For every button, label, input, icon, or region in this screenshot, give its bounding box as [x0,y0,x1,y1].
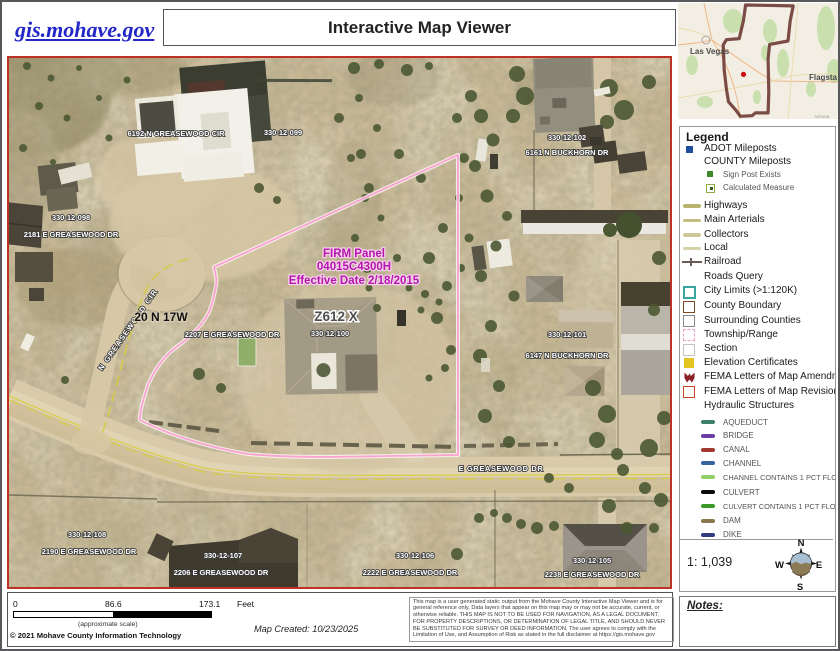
svg-text:330-12-100: 330-12-100 [311,329,349,338]
svg-text:6192 N GREASEWOOD CIR: 6192 N GREASEWOOD CIR [127,129,225,138]
svg-text:20 N 17W: 20 N 17W [134,310,188,324]
svg-text:330-12-105: 330-12-105 [573,556,611,565]
svg-text:04015C4300H: 04015C4300H [317,261,391,273]
svg-text:330-12-098: 330-12-098 [52,213,90,222]
svg-text:330-12-108: 330-12-108 [68,530,106,539]
svg-text:Flagsta: Flagsta [809,73,838,82]
svg-text:S: S [797,582,803,593]
svg-text:Las Vegas: Las Vegas [690,47,730,56]
svg-text:2206 E GREASEWOOD DR: 2206 E GREASEWOOD DR [174,568,269,577]
svg-text:N: N [798,538,805,549]
svg-text:2190 E GREASEWOOD DR: 2190 E GREASEWOOD DR [42,547,137,556]
svg-text:6161 N BUCKHORN DR: 6161 N BUCKHORN DR [526,148,610,157]
svg-text:330-12-106: 330-12-106 [396,551,434,560]
svg-text:2238 E GREASEWOOD DR: 2238 E GREASEWOOD DR [545,570,640,579]
svg-text:2222 E GREASEWOOD DR: 2222 E GREASEWOOD DR [363,568,458,577]
svg-text:330-12-107: 330-12-107 [204,551,242,560]
svg-text:2207 E GREASEWOOD DR: 2207 E GREASEWOOD DR [185,330,280,339]
svg-text:Z612 X: Z612 X [314,309,358,324]
svg-text:2181 E GREASEWOOD DR: 2181 E GREASEWOOD DR [24,230,119,239]
svg-text:6147 N BUCKHORN DR: 6147 N BUCKHORN DR [526,351,610,360]
svg-text:FIRM Panel: FIRM Panel [323,248,385,260]
svg-text:Effective Date 2/18/2015: Effective Date 2/18/2015 [289,275,420,287]
svg-text:W: W [775,560,784,571]
svg-text:330-12-099: 330-12-099 [264,128,302,137]
svg-text:330-12-101: 330-12-101 [548,330,586,339]
svg-text:330-12-102: 330-12-102 [548,133,586,142]
svg-text:E GREASEWOOD DR: E GREASEWOOD DR [459,464,544,473]
svg-text:E: E [816,560,822,571]
svg-text:Arizona: Arizona [814,114,830,119]
